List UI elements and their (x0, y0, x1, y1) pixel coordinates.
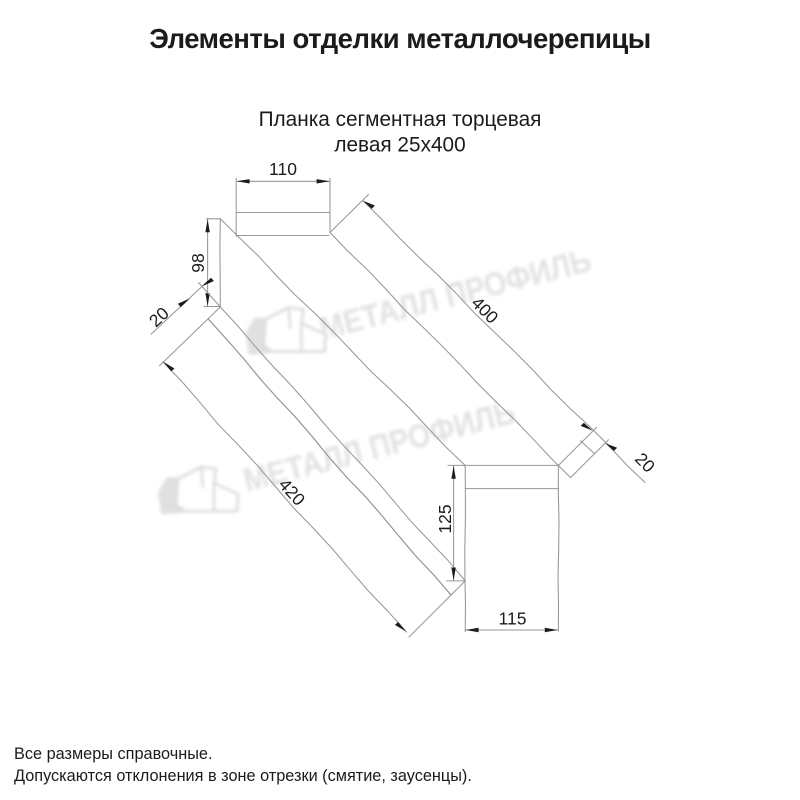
svg-text:Все размеры справочные.: Все размеры справочные. (14, 745, 212, 763)
svg-text:Допускаются отклонения в зоне: Допускаются отклонения в зоне отрезки (с… (14, 767, 472, 785)
svg-text:20: 20 (631, 449, 659, 477)
svg-text:левая 25х400: левая 25х400 (334, 134, 465, 157)
svg-text:110: 110 (269, 159, 297, 179)
svg-text:98: 98 (188, 253, 208, 272)
svg-text:МЕТАЛЛ ПРОФИЛЬ: МЕТАЛЛ ПРОФИЛЬ (316, 241, 595, 347)
svg-text:125: 125 (435, 504, 455, 533)
svg-text:115: 115 (499, 609, 527, 629)
svg-text:Элементы отделки металлочерепи: Элементы отделки металлочерепицы (149, 23, 651, 54)
svg-text:20: 20 (145, 303, 173, 331)
svg-text:Планка сегментная торцевая: Планка сегментная торцевая (259, 108, 542, 131)
